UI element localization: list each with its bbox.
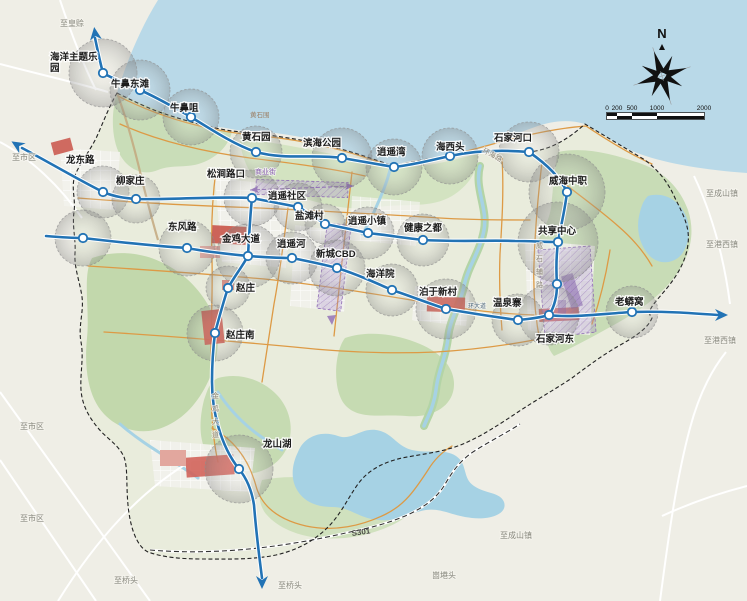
station-label: 新城CBD — [316, 248, 356, 260]
scale-tick-label: 2000 — [697, 105, 712, 112]
station-label: 牛鼻咀 — [170, 102, 199, 114]
station-label: 黄石园 — [242, 131, 271, 143]
station-label: 温泉寨 — [493, 297, 522, 309]
road-label: 环大道 — [468, 302, 486, 310]
station-label: 威海中职 — [549, 175, 588, 187]
station-label: 石家河口 — [493, 132, 532, 144]
station-label: 逍遥小镇 — [348, 215, 387, 227]
station-label: 龙东路 — [65, 154, 95, 166]
station-label: 滨海公园 — [303, 137, 341, 149]
station-marker — [99, 69, 107, 77]
station-marker — [338, 154, 346, 162]
station-marker — [99, 188, 107, 196]
scale-tick-label: 200 — [612, 105, 623, 112]
station-label: 赵庄 — [235, 282, 256, 294]
station-marker — [390, 163, 398, 171]
station-marker — [294, 203, 302, 211]
map-canvas[interactable]: 海洋主题乐园牛鼻东滩牛鼻咀黄石园滨海公园逍遥湾海西头石家河口威海中职共享中心石家… — [0, 0, 747, 601]
station-label: 老蟒窝 — [614, 296, 644, 308]
station-label: 松涧路口 — [207, 168, 245, 180]
scale-tick-label: 500 — [627, 105, 638, 112]
station-label: 东风路 — [168, 221, 197, 233]
station-marker — [187, 113, 195, 121]
station-marker — [224, 284, 232, 292]
station-marker — [419, 236, 427, 244]
direction-label: 至成山镇 — [500, 530, 532, 540]
station-label: 石家河东 — [535, 333, 575, 345]
station-marker — [252, 148, 260, 156]
station-marker — [79, 234, 87, 242]
station-marker — [553, 280, 561, 288]
scale-tick-label: 0 — [605, 105, 609, 112]
direction-label: 至市区 — [12, 152, 36, 162]
direction-label: 至成山镇 — [706, 188, 738, 198]
station-marker — [545, 311, 553, 319]
station-marker — [446, 152, 454, 160]
station-label: 泊于新村 — [419, 286, 458, 298]
station-label: 逍遥社区 — [268, 190, 307, 202]
station-label: 健康之都 — [404, 222, 443, 234]
station-label: 逍遥河 — [277, 238, 306, 250]
direction-label: 至桥头 — [278, 580, 302, 590]
station-label: 金鸡大道 — [221, 233, 261, 245]
station-marker — [525, 148, 533, 156]
station-marker — [364, 229, 372, 237]
station-label: 柳家庄 — [116, 175, 145, 187]
station-label: 海洋院 — [366, 268, 395, 280]
station-marker — [563, 188, 571, 196]
station-marker — [235, 465, 243, 473]
station-label: 海西头 — [436, 141, 465, 153]
station-marker — [183, 244, 191, 252]
station-label: 赵庄南 — [225, 329, 255, 341]
station-marker — [132, 195, 140, 203]
direction-label: 至皇赊 — [60, 18, 84, 28]
road-label: 黄石围 — [250, 110, 270, 119]
station-marker — [288, 254, 296, 262]
station-label: 共享中心 — [538, 225, 577, 237]
direction-label: 至市区 — [20, 421, 44, 431]
road-label: 商业街 — [255, 167, 276, 176]
station-marker — [388, 286, 396, 294]
station-marker — [333, 264, 341, 272]
station-label: 牛鼻东滩 — [111, 78, 150, 90]
station-marker — [442, 305, 450, 313]
station-label: 龙山湖 — [262, 438, 292, 450]
station-marker — [554, 238, 562, 246]
direction-label: 至桥头 — [114, 575, 138, 585]
station-marker — [248, 194, 256, 202]
station-label: 盐滩村 — [295, 210, 324, 222]
station-marker — [244, 252, 252, 260]
station-marker — [628, 308, 636, 316]
direction-label: 崮塂头 — [432, 570, 456, 580]
station-marker — [211, 329, 219, 337]
direction-label: 至市区 — [20, 513, 44, 523]
station-label: 逍遥湾 — [377, 146, 406, 158]
planning-map[interactable]: 海洋主题乐园牛鼻东滩牛鼻咀黄石园滨海公园逍遥湾海西头石家河口威海中职共享中心石家… — [0, 0, 747, 601]
direction-label: 至港西镇 — [706, 239, 738, 249]
compass-north-label: N — [657, 26, 666, 41]
station-marker — [514, 316, 522, 324]
scale-tick-label: 1000 — [650, 105, 665, 112]
direction-label: 至港西镇 — [704, 335, 736, 345]
